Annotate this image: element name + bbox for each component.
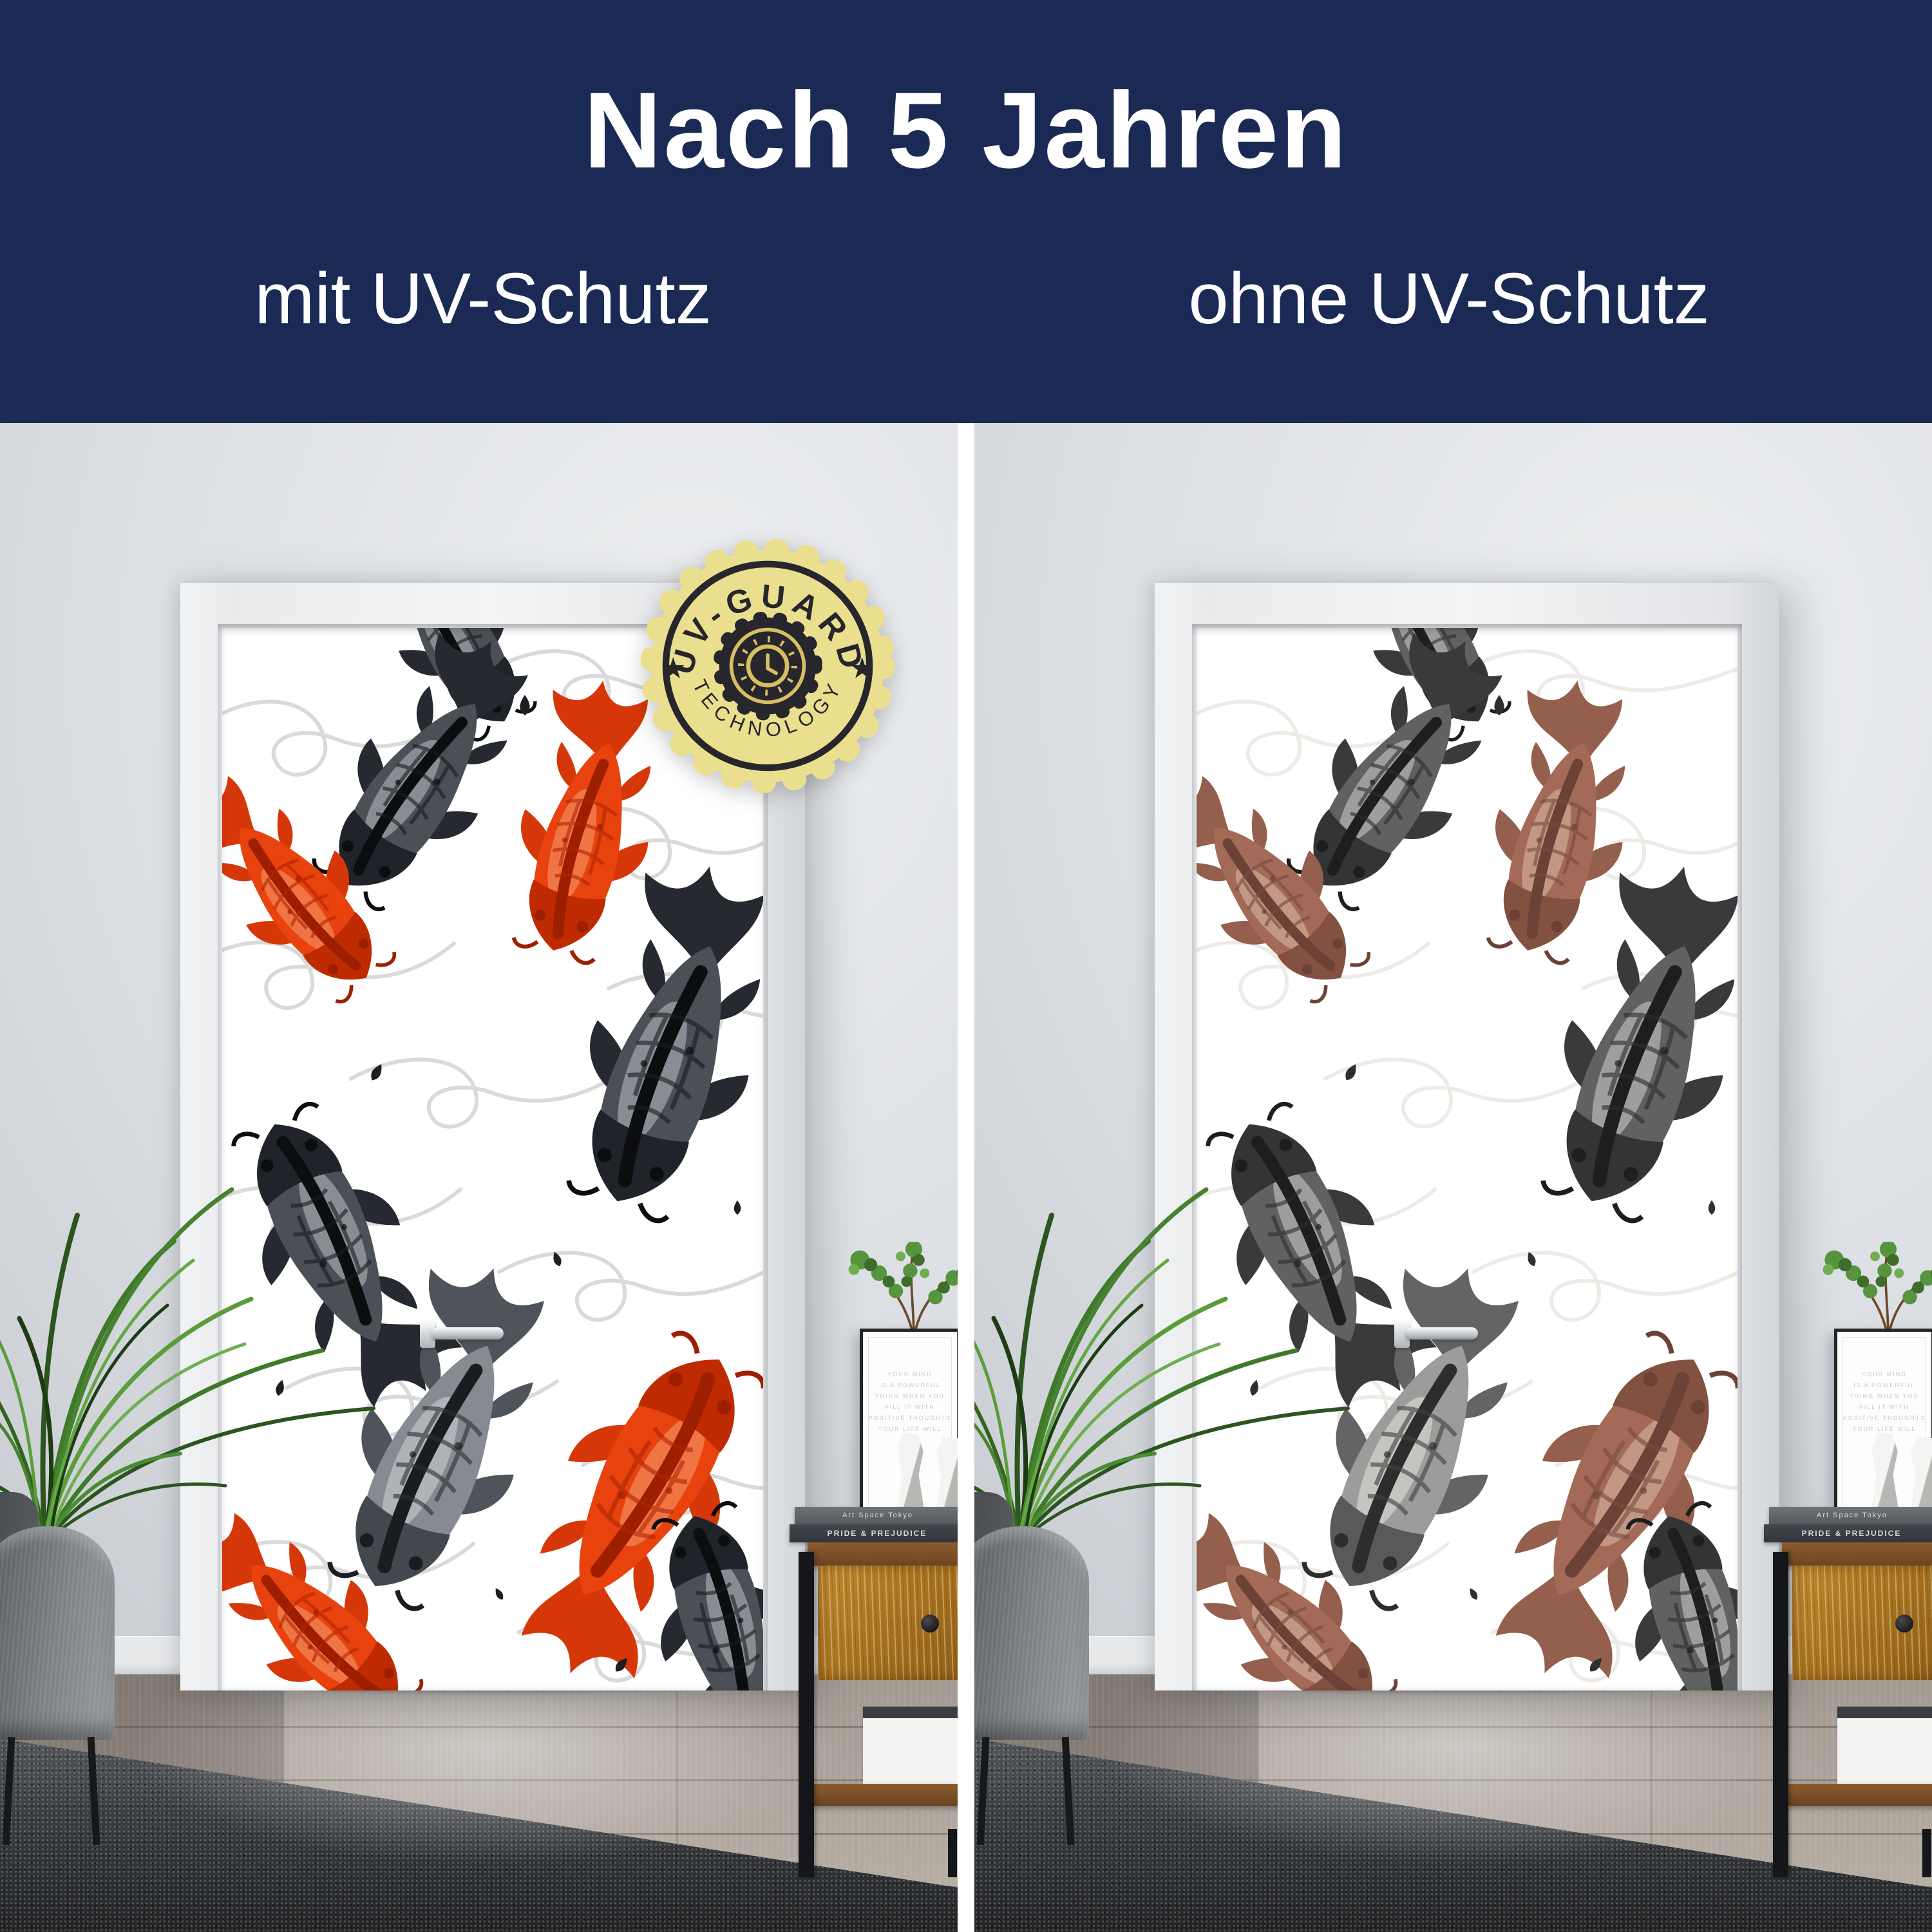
comparison-panels: YOUR MINDIS A POWERFUL THING WHEN YOUFIL… xyxy=(0,423,1932,1932)
koi-mural-faded xyxy=(1197,628,1738,1690)
book-spine: PRIDE & PREJUDICE xyxy=(1764,1524,1932,1542)
clock-gear-icon xyxy=(719,618,817,715)
frame-quote: YOUR MINDIS A POWERFUL THING WHEN YOUFIL… xyxy=(863,1369,957,1435)
label-without-uv: ohne UV-Schutz xyxy=(966,263,1932,335)
uv-comparison-poster: Nach 5 Jahren mit UV-Schutz ohne UV-Schu… xyxy=(0,0,1932,1932)
magazine-stack xyxy=(1837,1707,1932,1784)
label-with-uv: mit UV-Schutz xyxy=(0,263,966,335)
plant-pot xyxy=(974,1526,1089,1740)
sideboard-top xyxy=(808,1542,958,1566)
banner-title: Nach 5 Jahren xyxy=(0,76,1932,184)
banner-labels: mit UV-Schutz ohne UV-Schutz xyxy=(0,263,1932,335)
plant-pot xyxy=(0,1526,115,1740)
magazine-stack xyxy=(863,1707,958,1784)
sideboard-leg xyxy=(1922,1829,1931,1877)
sideboard-top xyxy=(1782,1542,1932,1566)
sideboard-drawer xyxy=(818,1566,958,1680)
book-spine: Art Space Tokyo xyxy=(795,1507,958,1524)
scene-with-uv: YOUR MINDIS A POWERFUL THING WHEN YOUFIL… xyxy=(0,423,958,1932)
drawer-knob xyxy=(921,1615,939,1633)
sideboard-drawer xyxy=(1792,1566,1932,1680)
sideboard-shelf xyxy=(1787,1784,1932,1806)
star-icon: ★ xyxy=(849,651,875,685)
frame-quote: YOUR MINDIS A POWERFUL THING WHEN YOUFIL… xyxy=(1837,1369,1931,1435)
sideboard-leg xyxy=(799,1552,814,1877)
panel-divider xyxy=(958,423,974,1932)
comparison-banner: Nach 5 Jahren mit UV-Schutz ohne UV-Schu… xyxy=(0,0,1932,423)
drawer-knob xyxy=(1895,1615,1913,1633)
door-with-koi-mural xyxy=(1155,583,1779,1690)
book-spine: PRIDE & PREJUDICE xyxy=(790,1524,958,1542)
door-handle-icon xyxy=(1394,1321,1481,1348)
sideboard: YOUR MINDIS A POWERFUL THING WHEN YOUFIL… xyxy=(799,1215,958,1879)
sideboard-shelf xyxy=(813,1784,958,1806)
scene-without-uv: YOUR MINDIS A POWERFUL THING WHEN YOUFIL… xyxy=(974,423,1932,1932)
door-handle-icon xyxy=(420,1321,506,1348)
book-spine: Art Space Tokyo xyxy=(1769,1507,1932,1524)
star-icon: ★ xyxy=(660,651,686,685)
sideboard-leg xyxy=(948,1829,957,1877)
sideboard-leg xyxy=(1773,1552,1788,1877)
uv-guard-badge: UV-GUARD TECHNOLOGY ★ ★ xyxy=(634,533,901,799)
sideboard: YOUR MINDIS A POWERFUL THING WHEN YOUFIL… xyxy=(1773,1215,1932,1879)
